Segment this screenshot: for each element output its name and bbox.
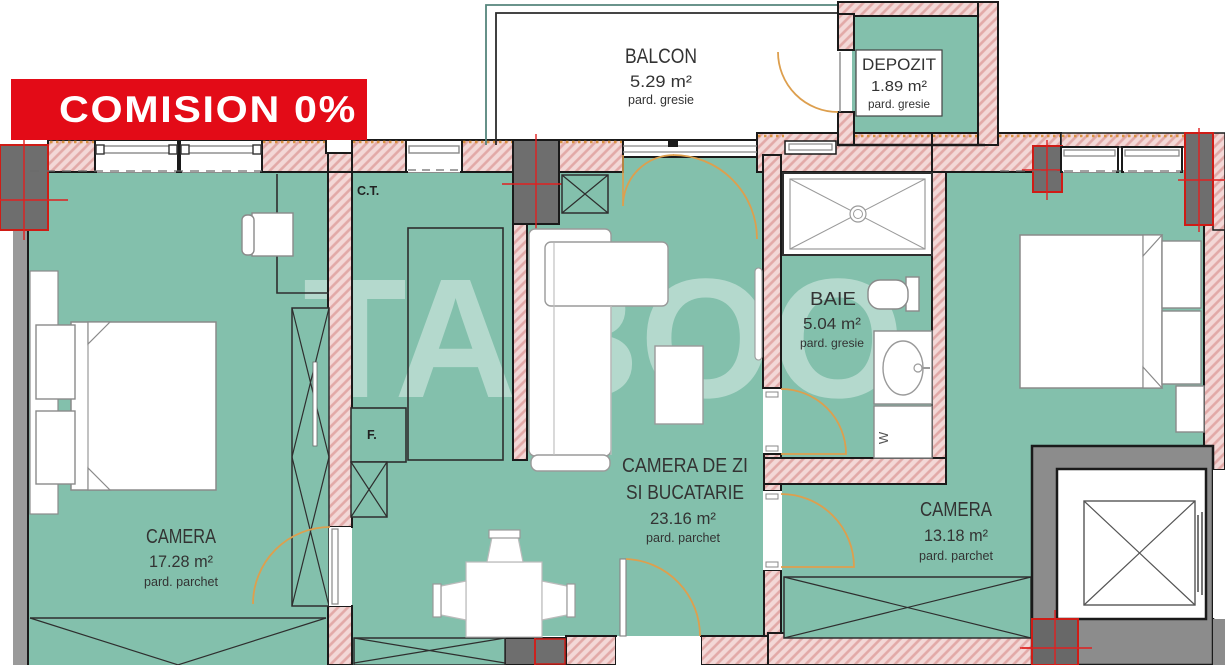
svg-text:5.04 m²: 5.04 m² bbox=[803, 316, 862, 333]
svg-text:pard. parchet: pard. parchet bbox=[144, 575, 219, 589]
svg-text:CAMERA: CAMERA bbox=[920, 499, 993, 521]
svg-text:DEPOZIT: DEPOZIT bbox=[862, 55, 936, 74]
svg-text:W: W bbox=[876, 431, 891, 444]
svg-text:COMISION 0%: COMISION 0% bbox=[59, 89, 357, 130]
svg-text:1.89 m²: 1.89 m² bbox=[871, 78, 927, 95]
svg-text:5.29 m²: 5.29 m² bbox=[630, 72, 692, 91]
svg-text:pard. gresie: pard. gresie bbox=[628, 93, 694, 107]
svg-text:13.18 m²: 13.18 m² bbox=[924, 526, 988, 545]
svg-text:BAIE: BAIE bbox=[810, 289, 856, 309]
svg-text:SI BUCATARIE: SI BUCATARIE bbox=[626, 482, 744, 504]
svg-text:pard. gresie: pard. gresie bbox=[868, 97, 930, 111]
svg-text:pard. parchet: pard. parchet bbox=[646, 531, 721, 545]
svg-text:17.28 m²: 17.28 m² bbox=[149, 552, 213, 571]
svg-text:BALCON: BALCON bbox=[625, 45, 697, 68]
svg-text:23.16 m²: 23.16 m² bbox=[650, 509, 716, 528]
svg-text:pard. gresie: pard. gresie bbox=[800, 336, 864, 350]
svg-text:CAMERA: CAMERA bbox=[146, 526, 217, 548]
svg-text:C.T.: C.T. bbox=[357, 184, 379, 198]
svg-text:F.: F. bbox=[367, 428, 377, 442]
svg-text:pard. parchet: pard. parchet bbox=[919, 549, 994, 563]
svg-text:CAMERA DE ZI: CAMERA DE ZI bbox=[622, 455, 748, 477]
